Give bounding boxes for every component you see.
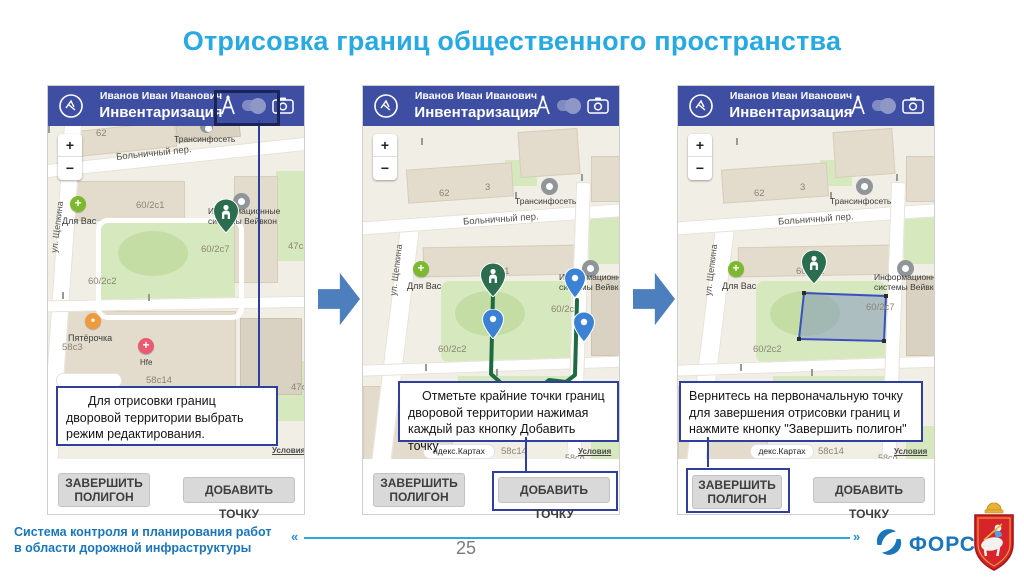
zoom-out-button[interactable]: −	[688, 156, 712, 179]
fors-logo-text: ФОРС	[909, 533, 976, 557]
footer-system-name: Система контроля и планирования работ в …	[14, 524, 271, 556]
finish-polygon-button[interactable]: ЗАВЕРШИТЬ ПОЛИГОН	[58, 473, 150, 507]
toggle-highlight-box	[214, 90, 280, 126]
add-point-button[interactable]: ДОБАВИТЬ ТОЧКУ	[183, 477, 295, 503]
finish-button-line1: ЗАВЕРШИТЬ	[698, 478, 776, 492]
edit-mode-toggle[interactable]	[872, 100, 894, 111]
add-point-button[interactable]: ДОБАВИТЬ ТОЧКУ	[498, 477, 610, 503]
user-location-pin	[801, 250, 827, 289]
edit-mode-toggle[interactable]	[557, 100, 579, 111]
footer-open-quote: «	[291, 529, 298, 544]
step-arrow-2	[633, 270, 675, 328]
boundary-point-pin	[564, 268, 586, 303]
map-attribution: декс.Картах	[750, 444, 814, 459]
footer-line2: в области дорожной инфраструктуры	[14, 540, 271, 556]
app-logo-icon[interactable]	[373, 93, 399, 119]
app-header: Иванов Иван Иванович Инвентаризация	[678, 86, 934, 126]
building-label: 60/2с1	[136, 200, 165, 211]
user-name: Иванов Иван Иванович	[401, 91, 551, 102]
finish-button-line2: ПОЛИГОН	[74, 490, 133, 504]
user-name: Иванов Иван Иванович	[716, 91, 866, 102]
building-label: 62	[96, 128, 107, 139]
screen-title: Инвентаризация	[716, 105, 866, 120]
zoom-out-button[interactable]: −	[373, 156, 397, 179]
finish-button-line1: ЗАВЕРШИТЬ	[65, 476, 143, 490]
poi-hfe-icon[interactable]: +	[138, 338, 154, 354]
app-header: Иванов Иван Иванович Инвентаризация	[363, 86, 619, 126]
fors-logo-icon	[874, 527, 904, 562]
callout-line-step3	[707, 437, 709, 467]
footer-close-quote: »	[853, 529, 860, 544]
callout-line-step1	[258, 120, 260, 386]
slide-title: Отрисовка границ общественного пространс…	[0, 26, 1024, 57]
edit-mode-icon[interactable]	[850, 95, 866, 120]
instruction-box-step3: Вернитесь на первоначальную точку для за…	[679, 381, 923, 442]
finish-button-line1: ЗАВЕРШИТЬ	[380, 476, 458, 490]
building-label: 60/2с2	[88, 276, 117, 287]
app-logo-icon[interactable]	[688, 93, 714, 119]
building-label: 47с3	[291, 382, 304, 393]
zoom-out-button[interactable]: −	[58, 156, 82, 179]
footer-rule	[304, 537, 850, 539]
zoom-in-button[interactable]: +	[373, 134, 397, 156]
finish-polygon-button[interactable]: ЗАВЕРШИТЬ ПОЛИГОН	[692, 475, 782, 509]
zoom-in-button[interactable]: +	[58, 134, 82, 156]
camera-icon[interactable]	[902, 97, 924, 119]
user-location-pin	[213, 199, 239, 238]
map-zoom-control: + −	[58, 134, 82, 180]
map-terms-link[interactable]: Условия	[272, 446, 304, 455]
instruction-box-step1: Для отрисовки границ дворовой территории…	[56, 386, 278, 446]
add-point-button[interactable]: ДОБАВИТЬ ТОЧКУ	[813, 477, 925, 503]
zoom-in-button[interactable]: +	[688, 134, 712, 156]
poi-pyaterochka-icon[interactable]: •	[85, 313, 101, 329]
map-terms-link[interactable]: Условия	[894, 447, 927, 456]
finish-button-line2: ПОЛИГОН	[389, 490, 448, 504]
step-arrow-1	[318, 270, 360, 328]
app-logo-icon[interactable]	[58, 93, 84, 119]
building-label: 47с3	[288, 241, 304, 252]
finish-button-line2: ПОЛИГОН	[707, 492, 766, 506]
instruction-box-step2: Отметьте крайние точки границ дворовой т…	[398, 381, 619, 442]
map-zoom-control: + −	[688, 134, 712, 180]
phone-mockup-step3: Иванов Иван Иванович Инвентаризация	[677, 85, 935, 515]
boundary-point-pin	[573, 312, 595, 347]
map-zoom-control: + −	[373, 134, 397, 180]
building-label: 58с14	[146, 375, 172, 386]
user-location-pin	[480, 263, 506, 302]
phone-mockup-step1: Иванов Иван Иванович Инвентаризация 6	[47, 85, 305, 515]
edit-mode-icon[interactable]	[535, 95, 551, 120]
screen-title: Инвентаризация	[401, 105, 551, 120]
map-terms-link[interactable]: Условия	[578, 447, 611, 456]
finish-polygon-button[interactable]: ЗАВЕРШИТЬ ПОЛИГОН	[373, 473, 465, 507]
fors-logo: ФОРС	[874, 527, 976, 562]
poi-label-dlya-vas: Для Вас	[62, 216, 96, 226]
boundary-point-pin	[482, 309, 504, 344]
page-number: 25	[446, 538, 486, 559]
building-label: 58с3	[62, 342, 83, 353]
building-label: 60/2с7	[201, 244, 230, 255]
poi-label-hfe: Hfe	[140, 358, 152, 367]
camera-icon[interactable]	[587, 97, 609, 119]
poi-ad-icon[interactable]: +	[70, 196, 86, 212]
poi-label-transinfoset: Трансинфосеть	[174, 134, 235, 144]
building-label: 60/2с7	[866, 302, 895, 313]
phone-mockup-step2: Иванов Иван Иванович Инвентаризация	[362, 85, 620, 515]
callout-line-step2	[525, 437, 527, 471]
footer-line1: Система контроля и планирования работ	[14, 524, 271, 540]
moscow-region-coat-of-arms	[972, 502, 1016, 577]
